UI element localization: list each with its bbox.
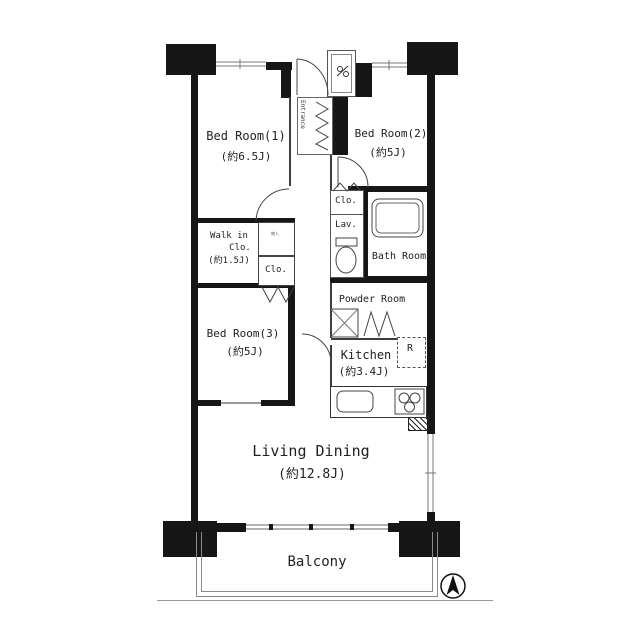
bathtub-icon [372, 199, 423, 237]
wall-bedroom3-right [288, 283, 295, 406]
partition-corridor-bedroom1 [289, 97, 291, 186]
bedroom3-size: (約5J) [226, 346, 264, 358]
wall-right-exterior-upper [427, 70, 435, 434]
entrance-label: Entrance [299, 100, 306, 152]
bedroom3-closet-label: Clo. [265, 266, 287, 276]
wall-entrance-left-v [281, 70, 291, 98]
wall-bedroom3-bottom-right [261, 400, 295, 406]
wall-right-exterior-lower [427, 512, 435, 526]
sliding-door-bedroom3 [221, 402, 261, 404]
powder-room-label: Powder Room [339, 294, 405, 305]
wall-entrance-left-h [266, 62, 292, 70]
ground-line [157, 600, 493, 601]
washer-icon-x1 [331, 309, 358, 337]
kitchen-sink-icon [337, 391, 373, 412]
living-dining-size: (約12.8J) [278, 468, 346, 482]
kitchen-label: Kitchen [341, 349, 392, 362]
floor-plan: Bed Room(1) (約6.5J) Bed Room(2) (約5J) Be… [0, 0, 640, 640]
compass-icon [441, 574, 465, 598]
bathtub-icon-inner [376, 203, 419, 233]
lavatory-label: Lav. [335, 221, 357, 231]
kitchen-size: (約3.4J) [339, 366, 390, 378]
bedroom2-label: Bed Room(2) [355, 128, 428, 140]
bedroom1-size: (約6.5J) [221, 151, 272, 163]
wall-shoebox-right [331, 92, 348, 155]
window-top-left [216, 59, 266, 69]
window-top-right [372, 60, 407, 70]
walkin-closet-line2: Clo. [229, 244, 251, 254]
walkin-closet-size: (約1.5J) [208, 257, 250, 267]
wall-balcony-stub-right [388, 523, 411, 532]
wall-balcony-stub-left [217, 523, 246, 532]
entrance-door-arc [297, 59, 328, 95]
vanity-icon [364, 312, 395, 336]
bath-room-label: Bath Room [372, 251, 426, 262]
washer-icon [331, 309, 358, 337]
hall-closet-label: Clo. [335, 197, 357, 207]
storage-cabinet [258, 222, 295, 256]
wall-bedroom3-bottom-left [191, 400, 221, 406]
living-door-arc [302, 334, 331, 363]
window-balcony [246, 524, 388, 530]
partition-powder-kitchen [331, 338, 397, 340]
bedroom2-door-arc [338, 157, 368, 187]
partition-powder-left [330, 283, 332, 338]
wall-kitchen-bottom [383, 408, 427, 415]
pipe-space-hatch [408, 416, 429, 431]
bedroom1-door-arc [256, 189, 289, 221]
wall-left-exterior [191, 70, 198, 526]
refrigerator-label: R [407, 343, 413, 354]
bedroom1-label: Bed Room(1) [206, 130, 285, 143]
bedroom2-size: (約5J) [369, 147, 407, 159]
partition-kitchen-left [330, 345, 332, 387]
meter-box-inner [331, 54, 352, 93]
stove-burner-2 [410, 393, 420, 403]
storage-label: 物入 [260, 232, 290, 236]
washer-icon-x2 [331, 309, 358, 337]
window-right-living [425, 434, 436, 512]
balcony-label: Balcony [287, 555, 346, 570]
stove-burner-1 [399, 393, 409, 403]
walkin-closet-line1: Walk in [210, 232, 248, 242]
bedroom3-label: Bed Room(3) [207, 328, 280, 340]
living-dining-label: Living Dining [252, 443, 369, 460]
